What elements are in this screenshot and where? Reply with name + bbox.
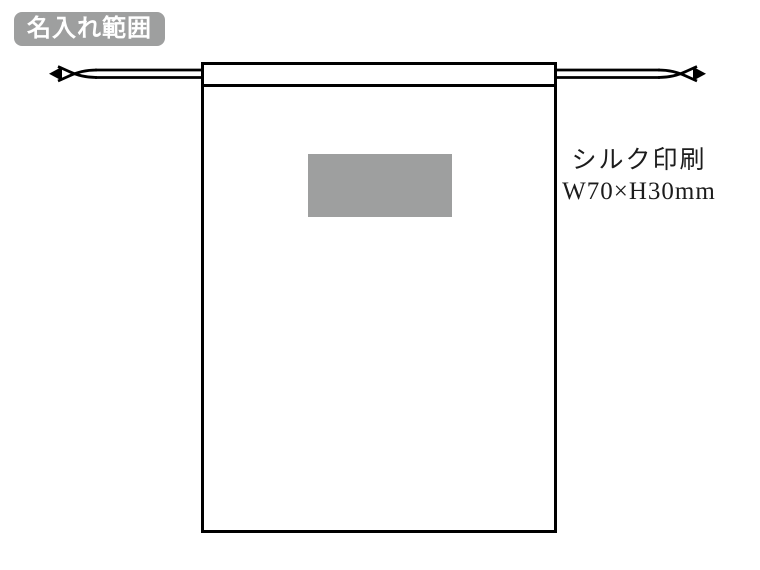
print-area-diagram: 名入れ範囲 シルク印刷 W70×H30mm [0,0,760,570]
print-size-label: W70×H30mm [558,176,720,207]
print-spec-caption: シルク印刷 W70×H30mm [558,145,720,207]
print-range-badge: 名入れ範囲 [14,12,165,46]
print-method-label: シルク印刷 [558,145,720,176]
pouch-outline [201,62,557,533]
print-area-rect [308,154,452,217]
drawstring-channel-line [204,84,554,87]
drawstring-cord-left-icon [45,60,205,87]
drawstring-cord-right-icon [553,60,710,87]
